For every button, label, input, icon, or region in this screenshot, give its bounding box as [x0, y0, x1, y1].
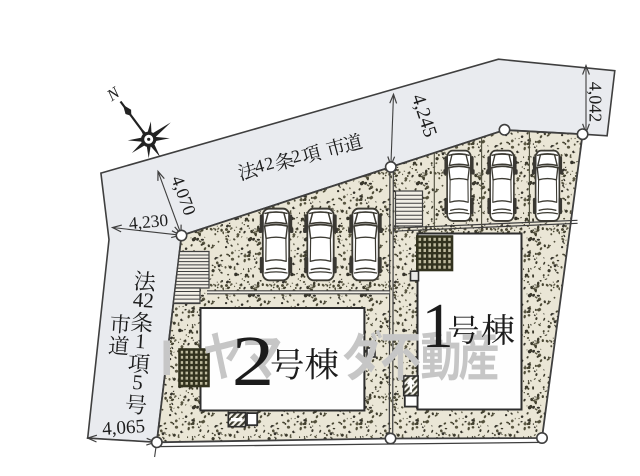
svg-text:4,230: 4,230 [128, 210, 169, 233]
svg-text:2: 2 [232, 321, 274, 401]
svg-text:4,042: 4,042 [586, 82, 606, 123]
svg-text:5: 5 [132, 370, 144, 395]
svg-text:1: 1 [422, 290, 454, 361]
svg-text:1: 1 [134, 329, 146, 354]
svg-text:4,065: 4,065 [102, 416, 146, 440]
svg-text:42: 42 [132, 287, 155, 312]
